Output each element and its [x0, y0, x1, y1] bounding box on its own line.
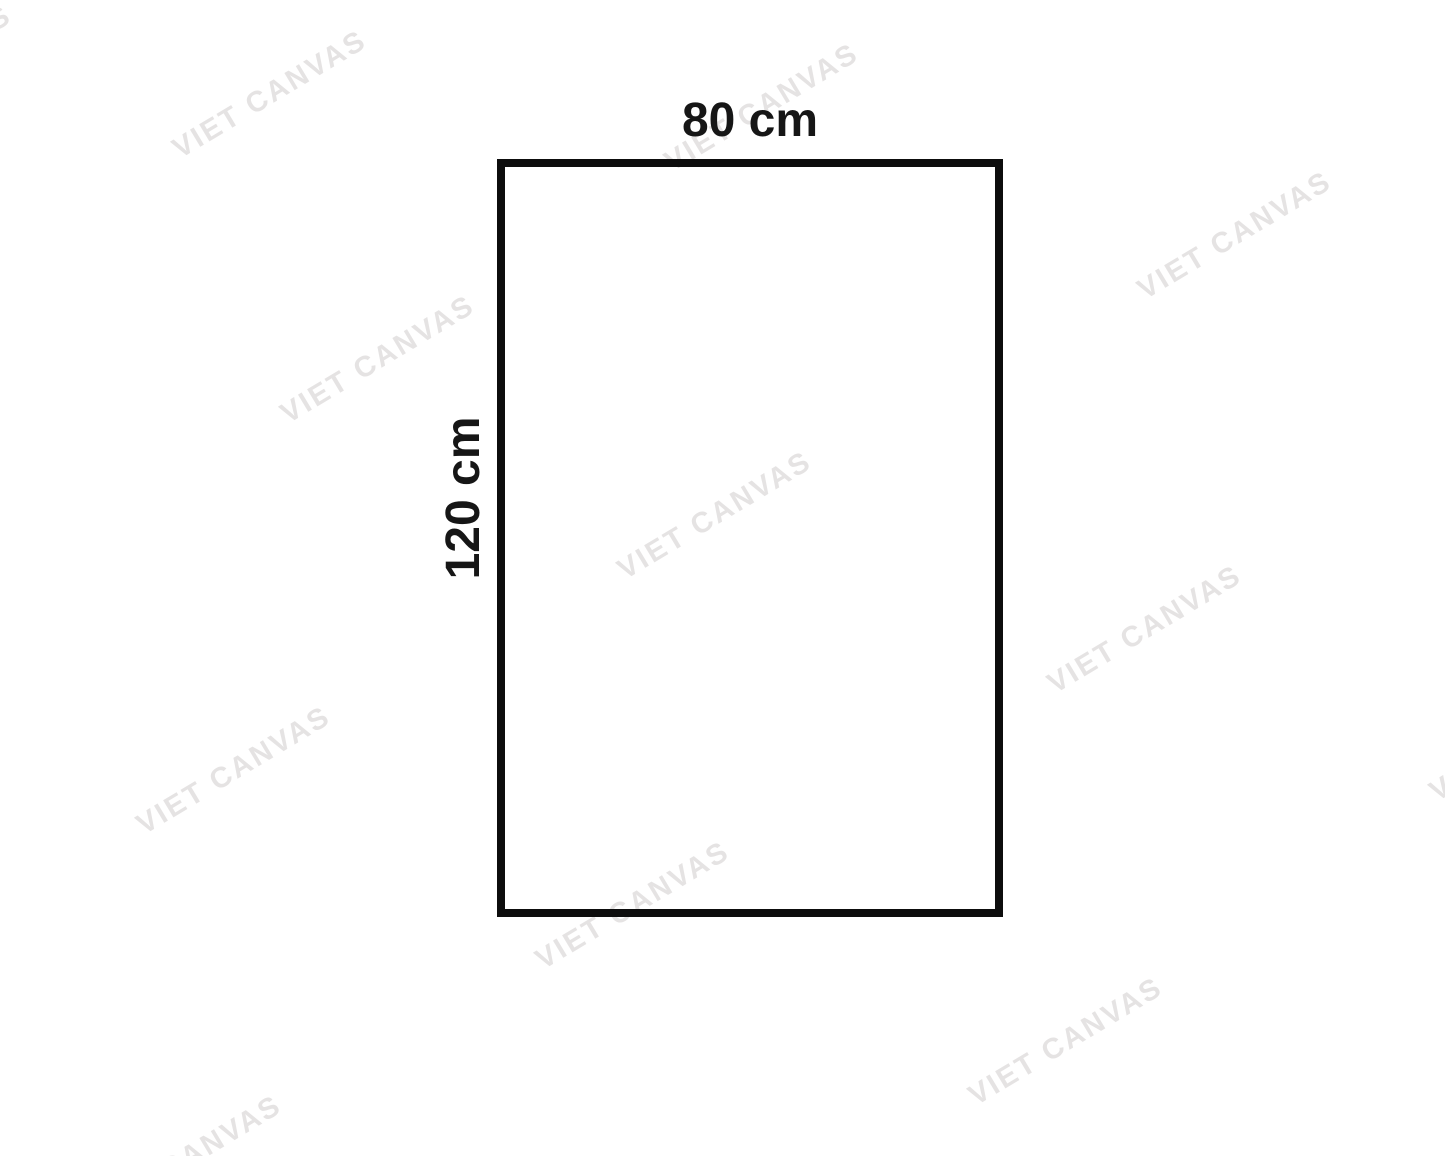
canvas-rectangle: [497, 159, 1003, 917]
product-dimension-diagram: VIET CANVASVIET CANVASVIET CANVASVIET CA…: [0, 0, 1445, 1156]
watermark-text: VIET CANVAS: [82, 1089, 288, 1156]
watermark-text: VIET CANVAS: [275, 289, 481, 431]
watermark-text: VIET CANVAS: [131, 700, 337, 842]
watermark-text: VIET CANVAS: [1132, 165, 1338, 307]
width-dimension-label: 80 cm: [497, 97, 1003, 145]
watermark-text: VIET CANVAS: [1424, 667, 1445, 809]
watermark-text: VIET CANVAS: [1042, 559, 1248, 701]
watermark-text: VIET CANVAS: [963, 971, 1169, 1113]
height-dimension-label: 120 cm: [440, 417, 488, 580]
watermark-text: VIET CANVAS: [0, 0, 18, 141]
watermark-text: VIET CANVAS: [167, 24, 373, 166]
